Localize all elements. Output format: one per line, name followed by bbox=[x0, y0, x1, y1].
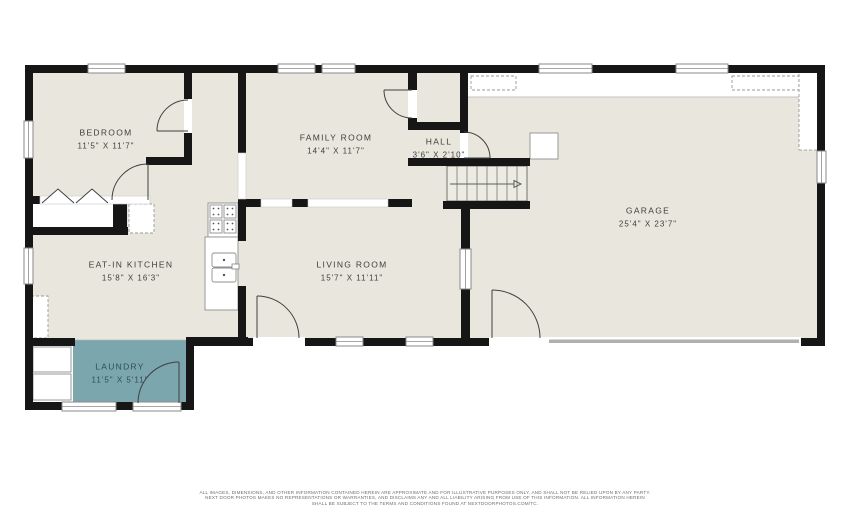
garage-storage-dashed-left bbox=[471, 76, 516, 90]
cased-opening bbox=[238, 153, 246, 199]
floorplan-page: BEDROOM 11'5" X 11'7" FAMILY ROOM 14'4" … bbox=[0, 0, 850, 520]
floor-areas bbox=[25, 65, 825, 404]
kitchen-dashed-counter bbox=[31, 296, 48, 338]
cased-opening bbox=[308, 199, 388, 207]
staircase-up-arrow-icon bbox=[447, 166, 527, 201]
dashed-appliance-icon bbox=[129, 204, 154, 233]
floorplan-drawing bbox=[0, 0, 850, 520]
garage-post bbox=[530, 133, 558, 159]
kitchen-counter bbox=[205, 237, 239, 310]
bedroom-closet-floor bbox=[32, 203, 114, 228]
disclaimer: ALL IMAGES, DIMENSIONS, AND OTHER INFORM… bbox=[0, 490, 850, 506]
disclaimer-line: SHALL BE SUBJECT TO THE TERMS AND CONDIT… bbox=[0, 501, 850, 506]
garage-storage-column bbox=[799, 72, 817, 150]
stove-4-burner-icon bbox=[208, 203, 238, 237]
garage-storage-dashed-right bbox=[732, 76, 799, 90]
cased-opening bbox=[261, 199, 292, 207]
